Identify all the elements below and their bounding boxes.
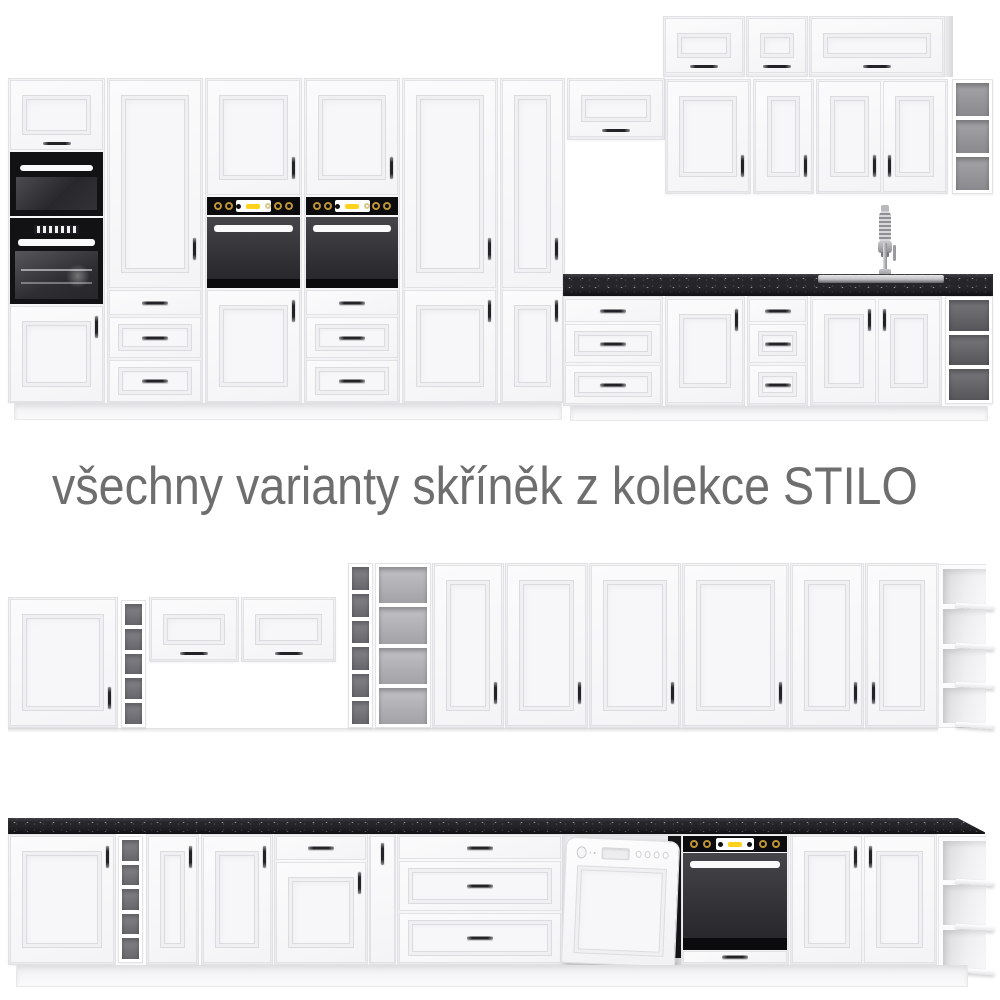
oven-button	[747, 842, 752, 847]
oven-knob	[690, 840, 698, 848]
drawer-front	[399, 836, 561, 859]
dishwasher-button	[636, 851, 642, 858]
dishwasher-handle-recess	[601, 847, 630, 860]
dishwasher-panel	[573, 865, 667, 957]
oven-button	[718, 842, 723, 847]
oven-display	[716, 838, 754, 850]
shelf-cell	[943, 841, 986, 880]
cabinet-door	[148, 836, 197, 963]
oven-display-accent	[728, 842, 742, 847]
dishwasher-indicator	[589, 851, 591, 853]
dishwasher-control-strip	[576, 844, 669, 863]
cabinet-door	[203, 836, 271, 963]
oven-knob	[703, 840, 711, 848]
dishwasher-front	[561, 837, 680, 968]
shelf-cell	[943, 885, 986, 924]
shelf-cell	[122, 914, 139, 935]
drawer-front	[276, 836, 366, 860]
oven-control-panel	[683, 836, 787, 852]
cabinet-door	[792, 836, 862, 963]
shelf-cell	[122, 889, 139, 910]
cabinet-door	[864, 836, 935, 963]
plinth	[16, 965, 968, 987]
dishwasher-button	[663, 852, 669, 859]
dishwasher-button	[654, 851, 660, 858]
product-collage: všechny varianty skříněk z kolekce STILO	[0, 0, 1000, 1000]
oven-door	[683, 853, 787, 950]
drawer-front	[399, 861, 561, 911]
shelf-cell	[122, 865, 139, 886]
cabinet-door	[370, 836, 395, 963]
shelf-cell	[122, 938, 139, 959]
drawer-front	[399, 913, 561, 963]
end-shelf-unit	[938, 836, 986, 974]
shelf-cell	[943, 930, 986, 969]
kitchen-set-bottom	[0, 0, 1000, 1000]
cabinet-door	[276, 862, 366, 963]
countertop	[8, 818, 985, 834]
oven-knob	[759, 840, 767, 848]
cabinet-door	[10, 836, 114, 963]
dishwasher-button	[645, 851, 651, 858]
open-shelf-column	[118, 836, 143, 963]
dishwasher-indicator	[594, 851, 596, 853]
dishwasher-button	[576, 846, 586, 858]
oven-knob	[772, 840, 780, 848]
oven-bottom-drawer	[683, 951, 787, 963]
shelf-cell	[122, 840, 139, 861]
